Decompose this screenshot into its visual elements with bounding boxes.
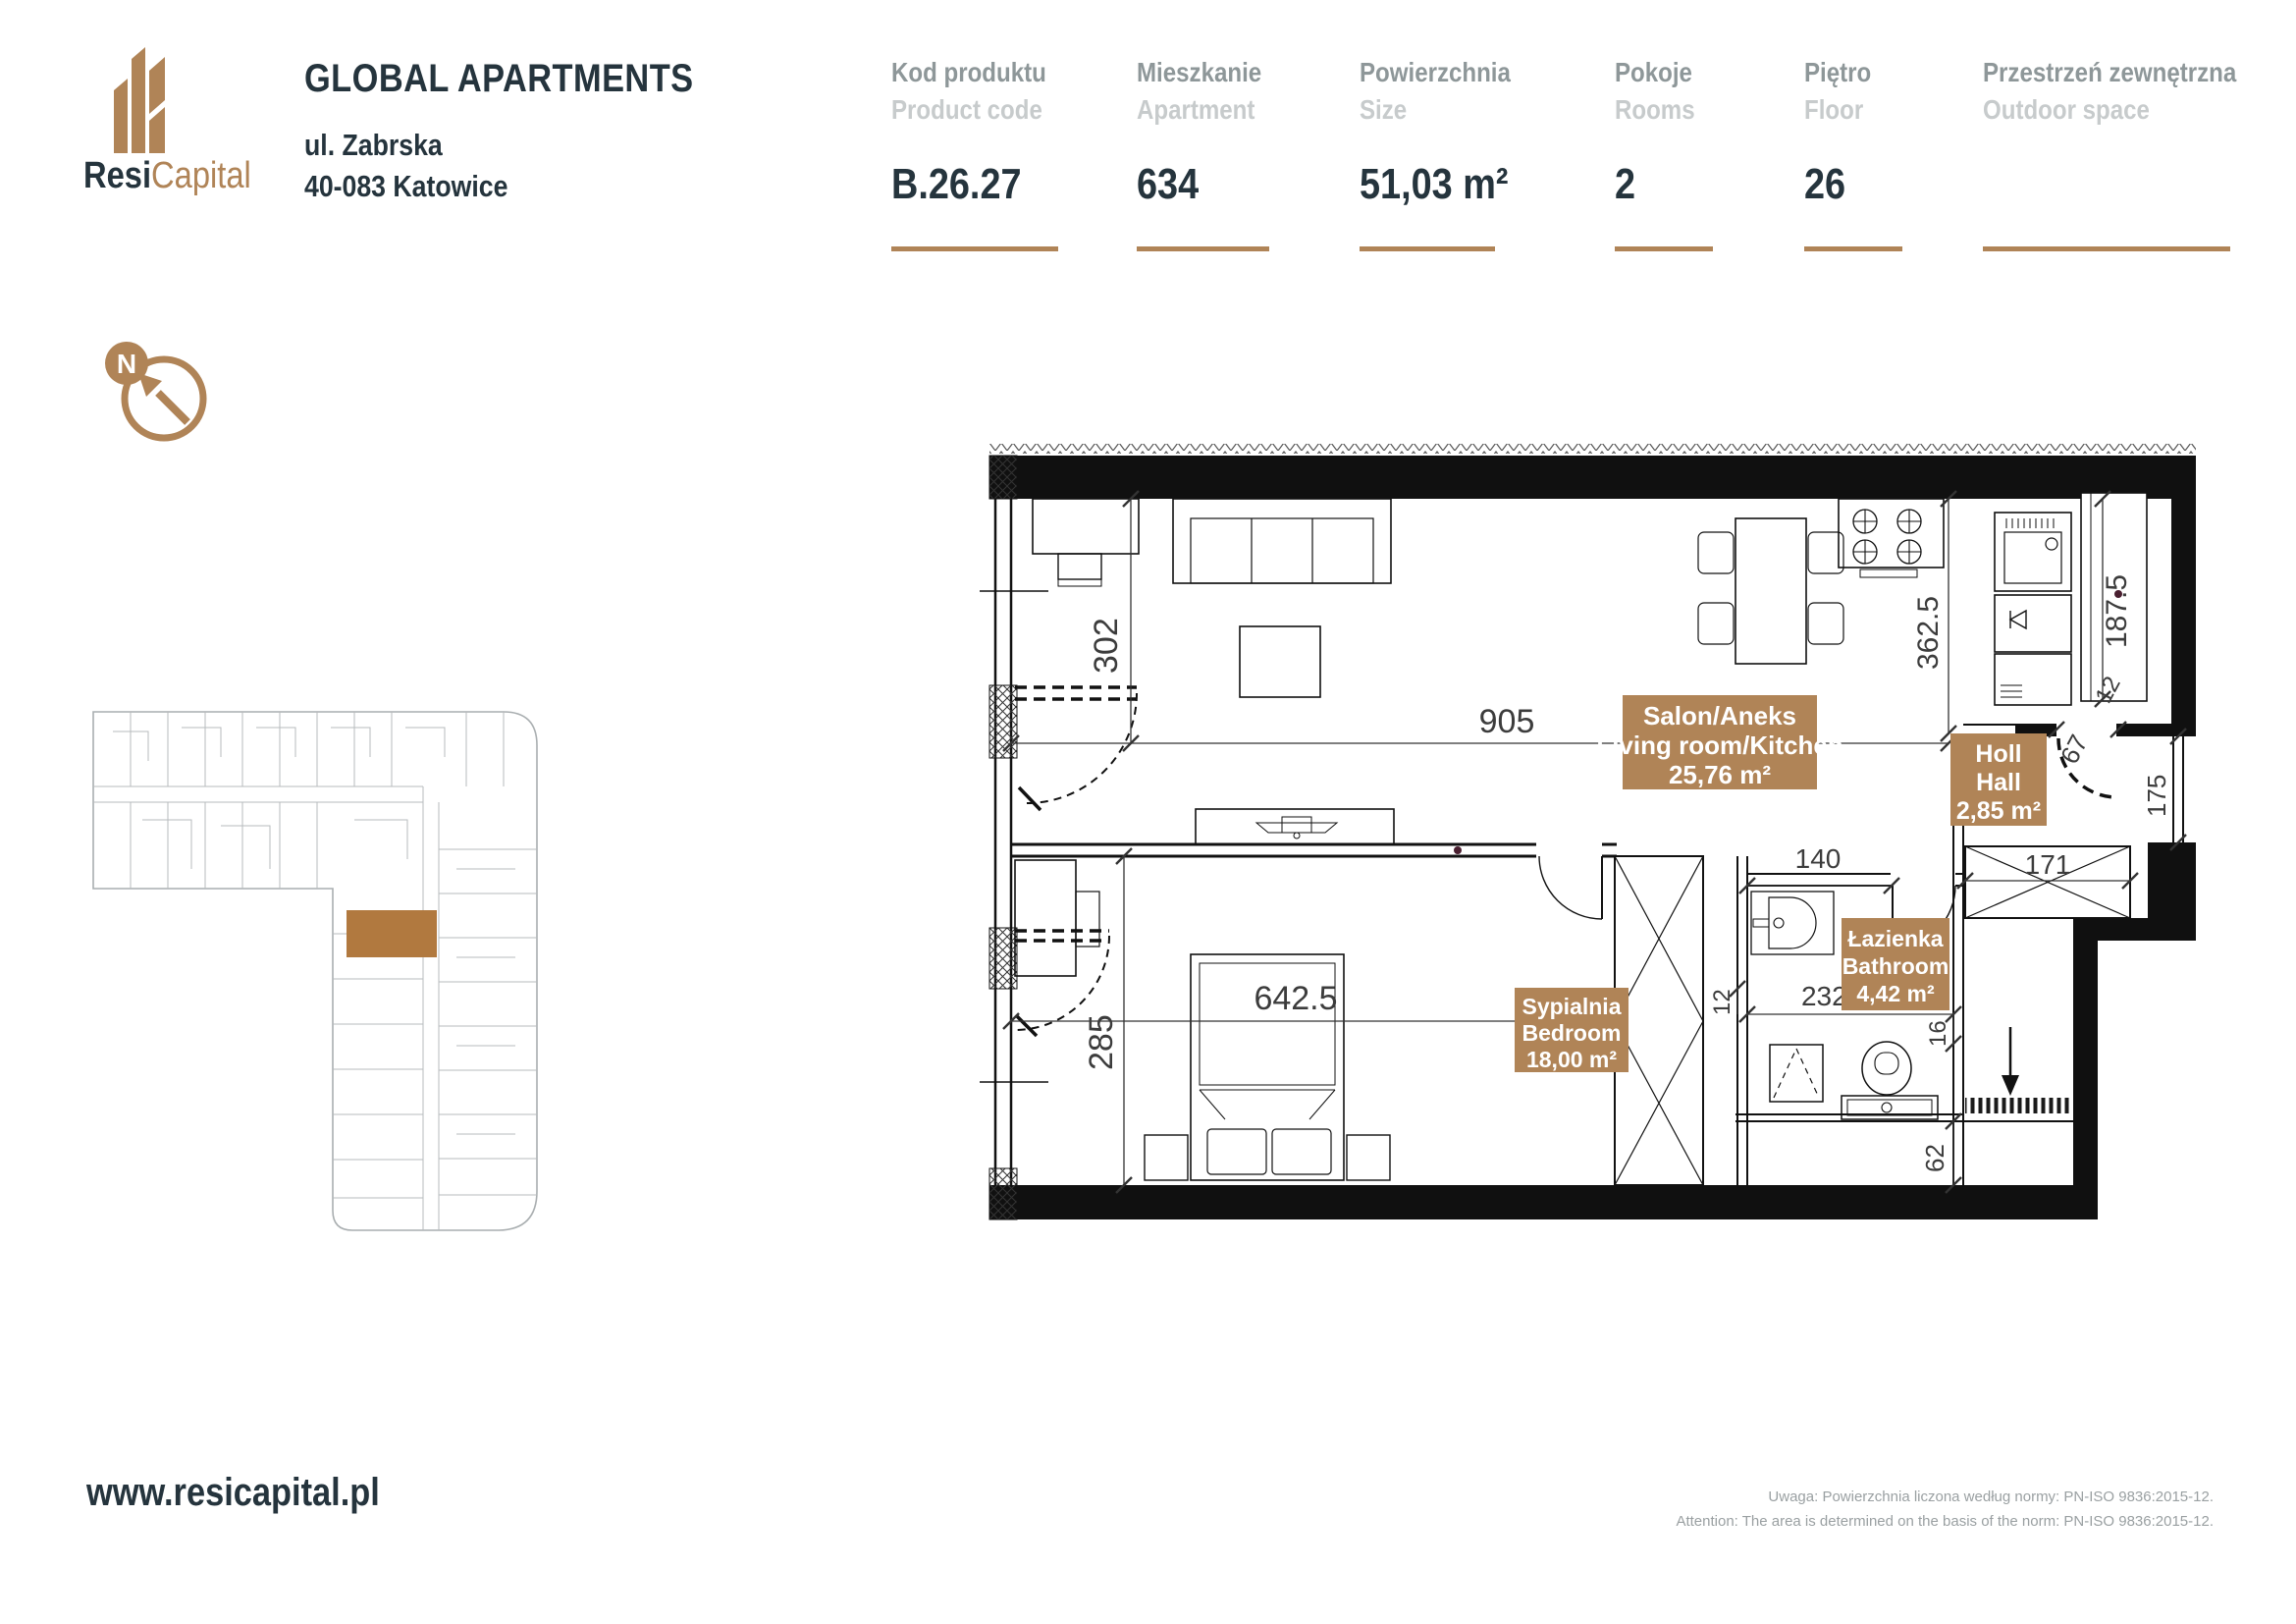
resicapital-logo-icon bbox=[83, 20, 290, 157]
address-line1: ul. Zabrska bbox=[304, 128, 443, 163]
dim-shaft: 171 bbox=[2025, 849, 2071, 880]
kitchen-sink bbox=[1995, 513, 2071, 591]
dim-living-depth: 302 bbox=[1088, 618, 1125, 674]
spec-value: B.26.27 bbox=[891, 160, 1022, 209]
spec-underline bbox=[1137, 246, 1269, 251]
spec-value: 634 bbox=[1137, 160, 1199, 209]
spec-label-pl: Powierzchnia bbox=[1360, 57, 1511, 88]
dim-bedroom-width: 642.5 bbox=[1254, 980, 1337, 1017]
dim-bottom-zone: 62 bbox=[1920, 1144, 1949, 1172]
dim-bath-nib: 16 bbox=[1925, 1020, 1951, 1047]
spec-label-en: Size bbox=[1360, 94, 1407, 126]
floorplan-sheet: ResiCapital GLOBAL APARTMENTS ul. Zabrsk… bbox=[0, 0, 2296, 1624]
dim-entry-door: 67 bbox=[2055, 730, 2094, 769]
spec-label-en: Apartment bbox=[1137, 94, 1255, 126]
kitchen-stove bbox=[1839, 499, 1944, 577]
address-line2: 40-083 Katowice bbox=[304, 169, 507, 204]
spec-label-en: Outdoor space bbox=[1983, 94, 2150, 126]
shower bbox=[1770, 1045, 1823, 1102]
spec-underline bbox=[1615, 246, 1713, 251]
dim-hall-side: 175 bbox=[2142, 775, 2171, 817]
sofa bbox=[1173, 499, 1391, 583]
room-name-en: Living room/Kitchen bbox=[1596, 731, 1842, 760]
left-facade-wall bbox=[980, 456, 1048, 1219]
kitchen-fridge bbox=[1995, 595, 2071, 705]
nightstand bbox=[1145, 1135, 1188, 1180]
corridor-arrow-icon bbox=[2002, 1027, 2019, 1096]
dining-set bbox=[1698, 518, 1843, 664]
spec-floor: Piętro Floor 26 bbox=[1804, 57, 1942, 263]
room-name-pl: Holl bbox=[1975, 740, 2021, 768]
room-name-pl: Sypialnia bbox=[1522, 994, 1622, 1019]
spec-label-en: Product code bbox=[891, 94, 1042, 126]
exterior-insulation-hatch bbox=[989, 444, 2196, 454]
project-title: GLOBAL APARTMENTS bbox=[304, 57, 694, 101]
washbasin bbox=[1751, 892, 1834, 954]
spec-value: 26 bbox=[1804, 160, 1845, 209]
spec-size: Powierzchnia Size 51,03 m² bbox=[1360, 57, 1556, 263]
room-label-living: Salon/Aneks Living room/Kitchen 25,76 m² bbox=[1596, 695, 1842, 789]
spec-underline bbox=[891, 246, 1058, 251]
room-name-pl: Salon/Aneks bbox=[1643, 701, 1796, 731]
room-label-bedroom: Sypialnia Bedroom 18,00 m² bbox=[1515, 988, 1629, 1072]
nightstand bbox=[1347, 1135, 1390, 1180]
bedroom-door bbox=[1539, 856, 1602, 919]
tv-sideboard bbox=[1196, 809, 1394, 844]
spec-label-pl: Przestrzeń zewnętrzna bbox=[1983, 57, 2236, 88]
spec-label-pl: Pokoje bbox=[1615, 57, 1692, 88]
balcony-door-living bbox=[1015, 687, 1137, 810]
room-area: 25,76 m² bbox=[1669, 760, 1771, 789]
footer-legal-note: Uwaga: Powierzchnia liczona według normy… bbox=[1330, 1485, 2214, 1534]
compass-north-label: N bbox=[117, 349, 136, 379]
bedroom-desk bbox=[1015, 860, 1099, 976]
apartment-floorplan: 302 905 285 642.5 362.5 187.5 175 171 14… bbox=[972, 442, 2199, 1242]
dim-living-width: 905 bbox=[1479, 703, 1535, 740]
logo-text-resi: Resi bbox=[83, 155, 151, 196]
footer-website: www.resicapital.pl bbox=[86, 1471, 380, 1515]
spec-underline bbox=[1804, 246, 1902, 251]
room-area: 2,85 m² bbox=[1956, 797, 2041, 825]
logo-text-capital: Capital bbox=[151, 155, 251, 196]
spec-label-en: Floor bbox=[1804, 94, 1863, 126]
spec-label-pl: Kod produktu bbox=[891, 57, 1046, 88]
spec-product-code: Kod produktu Product code B.26.27 bbox=[891, 57, 1088, 263]
spec-apartment: Mieszkanie Apartment 634 bbox=[1137, 57, 1313, 263]
north-compass-icon: N bbox=[93, 334, 221, 461]
room-area: 4,42 m² bbox=[1856, 981, 1935, 1006]
footer-note-pl: Uwaga: Powierzchnia liczona według normy… bbox=[1330, 1485, 2214, 1509]
spec-underline bbox=[1360, 246, 1495, 251]
dim-bath-left: 140 bbox=[1795, 843, 1842, 874]
room-name-pl: Łazienka bbox=[1847, 926, 1943, 951]
dim-wall-a: 12 bbox=[1709, 989, 1735, 1015]
spec-label-pl: Piętro bbox=[1804, 57, 1871, 88]
dim-kitchen-depth: 362.5 bbox=[1912, 596, 1945, 670]
coffee-table bbox=[1240, 626, 1320, 697]
electrical-point bbox=[1454, 846, 1462, 854]
spec-value: 51,03 m² bbox=[1360, 160, 1508, 209]
toilet bbox=[1842, 1042, 1938, 1119]
floor-grate bbox=[1965, 1098, 2071, 1113]
dim-counter: 187.5 bbox=[2101, 574, 2133, 648]
spec-underline bbox=[1983, 246, 2230, 251]
room-area: 18,00 m² bbox=[1526, 1047, 1617, 1072]
room-label-bathroom: Łazienka Bathroom 4,42 m² bbox=[1842, 918, 1949, 1010]
resicapital-logo-text: ResiCapital bbox=[83, 155, 251, 197]
spec-value: 2 bbox=[1615, 160, 1635, 209]
footer-note-en: Attention: The area is determined on the… bbox=[1330, 1509, 2214, 1534]
dim-bedroom-depth: 285 bbox=[1083, 1014, 1120, 1070]
spec-label-en: Rooms bbox=[1615, 94, 1695, 126]
spec-label-pl: Mieszkanie bbox=[1137, 57, 1261, 88]
room-name-en: Bathroom bbox=[1842, 953, 1949, 979]
highlighted-unit bbox=[347, 910, 437, 957]
room-label-hall: Holl Hall 2,85 m² bbox=[1950, 733, 2047, 826]
spec-outdoor-space: Przestrzeń zewnętrzna Outdoor space bbox=[1983, 57, 2238, 263]
spec-rooms: Pokoje Rooms 2 bbox=[1615, 57, 1752, 263]
building-floor-overview bbox=[83, 702, 555, 1252]
room-name-en: Bedroom bbox=[1522, 1020, 1622, 1046]
window-frames bbox=[989, 456, 1017, 1219]
living-desk bbox=[1033, 499, 1139, 586]
room-name-en: Hall bbox=[1976, 769, 2021, 796]
